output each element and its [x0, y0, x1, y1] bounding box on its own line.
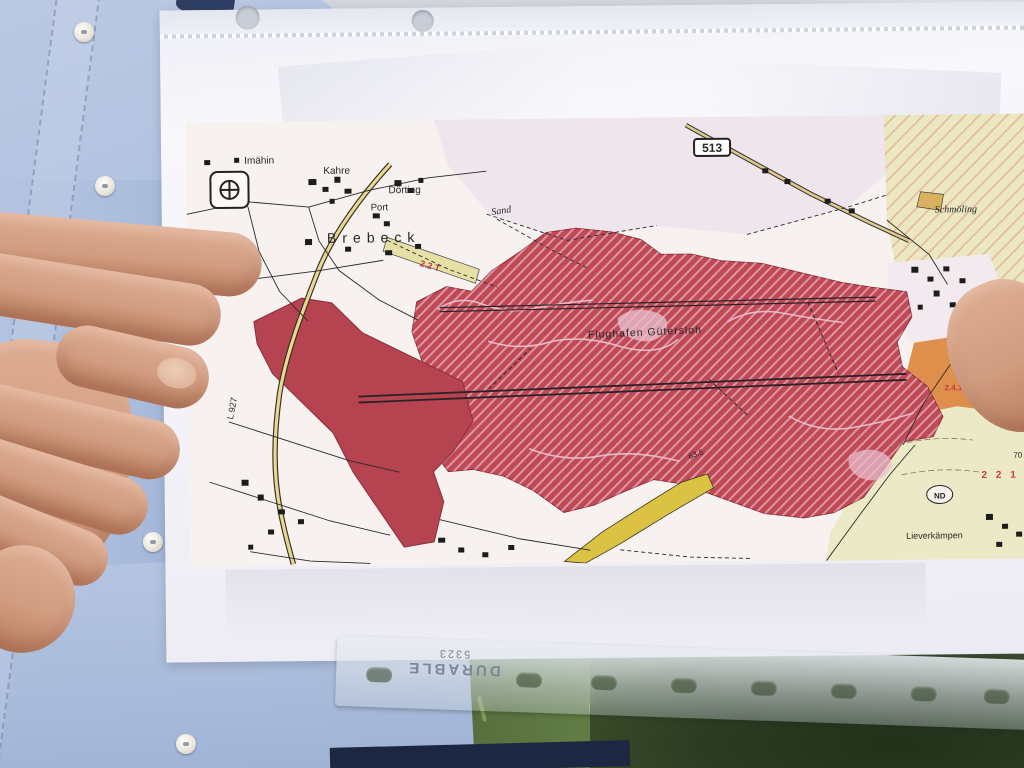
plastic-sleeve-with-paper: 513 ND Imähin Kahre Dörting Port Brebeck…: [160, 1, 1024, 662]
label-kahre: Kahre: [323, 166, 350, 177]
filing-hole: [591, 675, 618, 691]
label-imahin: Imähin: [244, 155, 274, 166]
label-contour-70: 70: [1013, 451, 1023, 460]
filing-hole: [671, 677, 698, 693]
filing-hole: [983, 688, 1010, 704]
label-zone-221: 2 2 1: [981, 470, 1018, 481]
label-lieverkaempen: Lieverkämpen: [906, 530, 963, 541]
sleeve-punch-hole: [412, 10, 434, 32]
label-doerting: Dörting: [388, 185, 420, 196]
shirt-button: [74, 22, 94, 42]
nd-label: ND: [934, 491, 946, 500]
filing-hole: [751, 680, 778, 696]
filing-hole: [831, 683, 858, 699]
map-nd-symbol: ND: [927, 485, 953, 503]
sleeve-punch-hole: [236, 6, 260, 30]
shirt-button: [95, 176, 115, 196]
filing-hole: [911, 686, 938, 702]
road-badge-label: 513: [702, 141, 722, 155]
label-port: Port: [371, 202, 389, 213]
paper-crease: [225, 563, 926, 640]
thumbnail: [154, 354, 200, 392]
shirt-button: [176, 734, 196, 754]
map-road-badge-513: 513: [694, 139, 730, 156]
sleeve-brand-imprint: DURABLE 5323: [406, 646, 501, 678]
label-brebeck: Brebeck: [327, 229, 421, 246]
map-circle-cross-symbol: [210, 172, 248, 208]
filing-hole: [516, 672, 543, 688]
sleeve-brand: DURABLE: [406, 658, 501, 678]
label-schmoeling: Schmöling: [935, 204, 977, 215]
photo-held-map: 513 ND Imähin Kahre Dörting Port Brebeck…: [0, 0, 1024, 768]
shirt-button: [143, 532, 163, 552]
filing-hole: [366, 667, 393, 683]
printed-map: 513 ND Imähin Kahre Dörting Port Brebeck…: [186, 114, 1024, 568]
